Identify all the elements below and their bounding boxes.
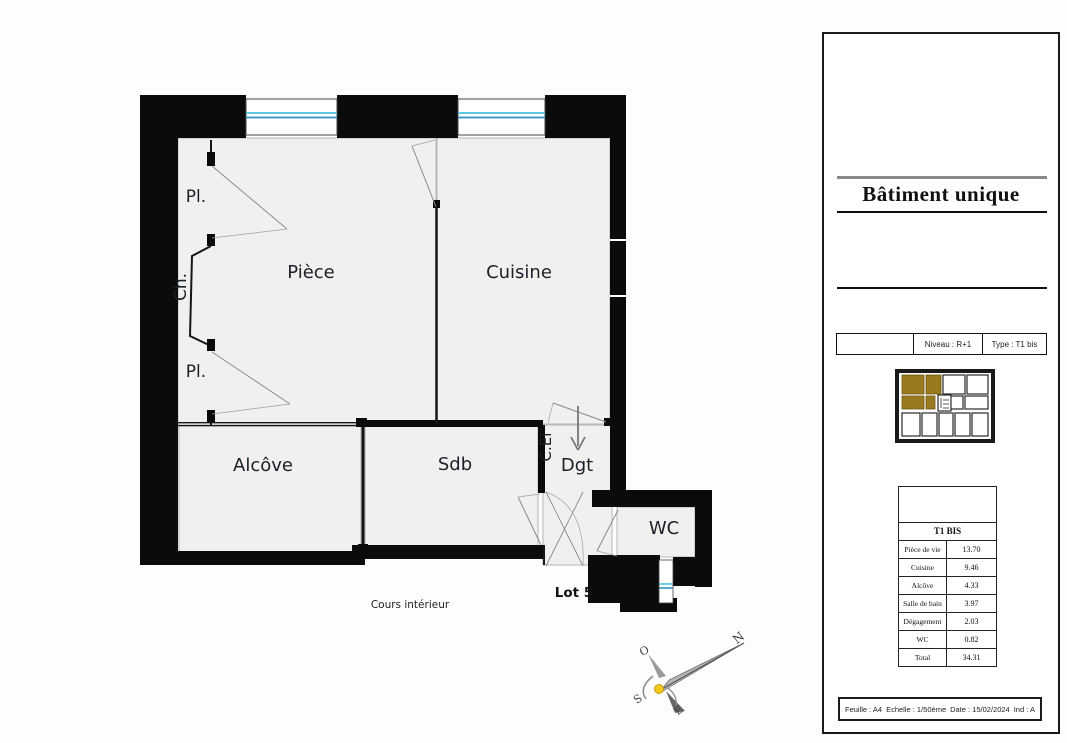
room-name: Alcôve	[899, 577, 947, 594]
label-alcove: Alcôve	[233, 455, 293, 476]
compass: N O S E	[631, 629, 747, 718]
label-lot: Lot 5	[555, 585, 593, 601]
compass-east: E	[671, 703, 686, 718]
room-area: 9.46	[947, 559, 996, 576]
compass-center-dot	[655, 685, 664, 694]
label-sdb: Sdb	[438, 454, 472, 475]
table-row: WC 0.82	[899, 631, 996, 649]
room-name: Pièce de vie	[899, 541, 947, 558]
room-name: Cuisine	[899, 559, 947, 576]
footer-date: Date : 15/02/2024	[950, 705, 1010, 714]
wall-entrance-left	[588, 555, 660, 603]
wall-top-1	[140, 95, 246, 138]
window-entrance	[659, 560, 673, 603]
building-title: Bâtiment unique	[824, 182, 1058, 207]
area-table: T1 BIS Pièce de vie 13.70 Cuisine 9.46 A…	[898, 486, 997, 667]
room-name: Salle de bain	[899, 595, 947, 612]
room-area: 4.33	[947, 577, 996, 594]
location-thumbnail	[895, 368, 995, 445]
compass-west-leaf	[648, 654, 666, 678]
wall-wc-top	[592, 490, 712, 507]
label-ch: Ch.	[171, 273, 191, 301]
room-area: 13.70	[947, 541, 996, 558]
divider-rule	[837, 287, 1047, 289]
drawing-footer: Feuille : A4 Echelle : 1/50ème Date : 15…	[838, 697, 1042, 721]
room-name: Total	[899, 649, 947, 666]
title-rule-black	[837, 211, 1047, 213]
title-rule-gray	[837, 176, 1047, 179]
wall-bottom-alcove	[140, 551, 365, 565]
label-piece: Pièce	[287, 262, 335, 283]
wall-bottom-sdb	[352, 545, 544, 559]
label-dgt: Dgt	[561, 455, 593, 476]
wall-top-3	[545, 95, 611, 138]
level-type-row: Niveau : R+1 Type : T1 bis	[836, 333, 1047, 355]
room-name: WC	[899, 631, 947, 648]
info-level: Niveau : R+1	[914, 334, 983, 354]
wall-top-2	[337, 95, 458, 138]
label-wc: WC	[649, 518, 679, 539]
table-row: Alcôve 4.33	[899, 577, 996, 595]
wall-right	[610, 95, 626, 505]
footer-index: Ind : A	[1014, 705, 1035, 714]
room-area: 34.31	[947, 649, 996, 666]
info-type: Type : T1 bis	[983, 334, 1046, 354]
compass-north: N	[730, 629, 747, 646]
footer-sheet: Feuille : A4	[845, 705, 882, 714]
table-row: Dégagement 2.03	[899, 613, 996, 631]
label-cuisine: Cuisine	[486, 262, 552, 283]
room-name: Dégagement	[899, 613, 947, 630]
room-area: 0.82	[947, 631, 996, 648]
table-row: Salle de bain 3.97	[899, 595, 996, 613]
wall-left	[140, 95, 178, 565]
wall-entrance-right	[673, 557, 712, 586]
label-cel: C.El	[537, 433, 555, 462]
window-cuisine	[458, 99, 545, 135]
title-block-panel: Bâtiment unique Niveau : R+1 Type : T1 b…	[822, 32, 1060, 734]
room-sdb	[365, 426, 538, 546]
room-area: 3.97	[947, 595, 996, 612]
room-area: 2.03	[947, 613, 996, 630]
thumbnail-highlight	[902, 375, 941, 409]
table-row: Pièce de vie 13.70	[899, 541, 996, 559]
table-row: Cuisine 9.46	[899, 559, 996, 577]
table-row: Total 34.31	[899, 649, 996, 666]
info-empty-cell	[837, 334, 914, 354]
label-pl-top: Pl.	[186, 187, 206, 207]
footer-scale: Echelle : 1/50ème	[886, 705, 946, 714]
label-pl-bottom: Pl.	[186, 362, 206, 382]
window-piece	[246, 99, 337, 135]
area-table-header: T1 BIS	[899, 523, 996, 541]
label-courtyard: Cours intérieur	[371, 599, 450, 611]
wall-sdb-top	[365, 420, 543, 427]
room-alcove	[179, 426, 361, 552]
area-table-empty-cell	[899, 487, 996, 523]
